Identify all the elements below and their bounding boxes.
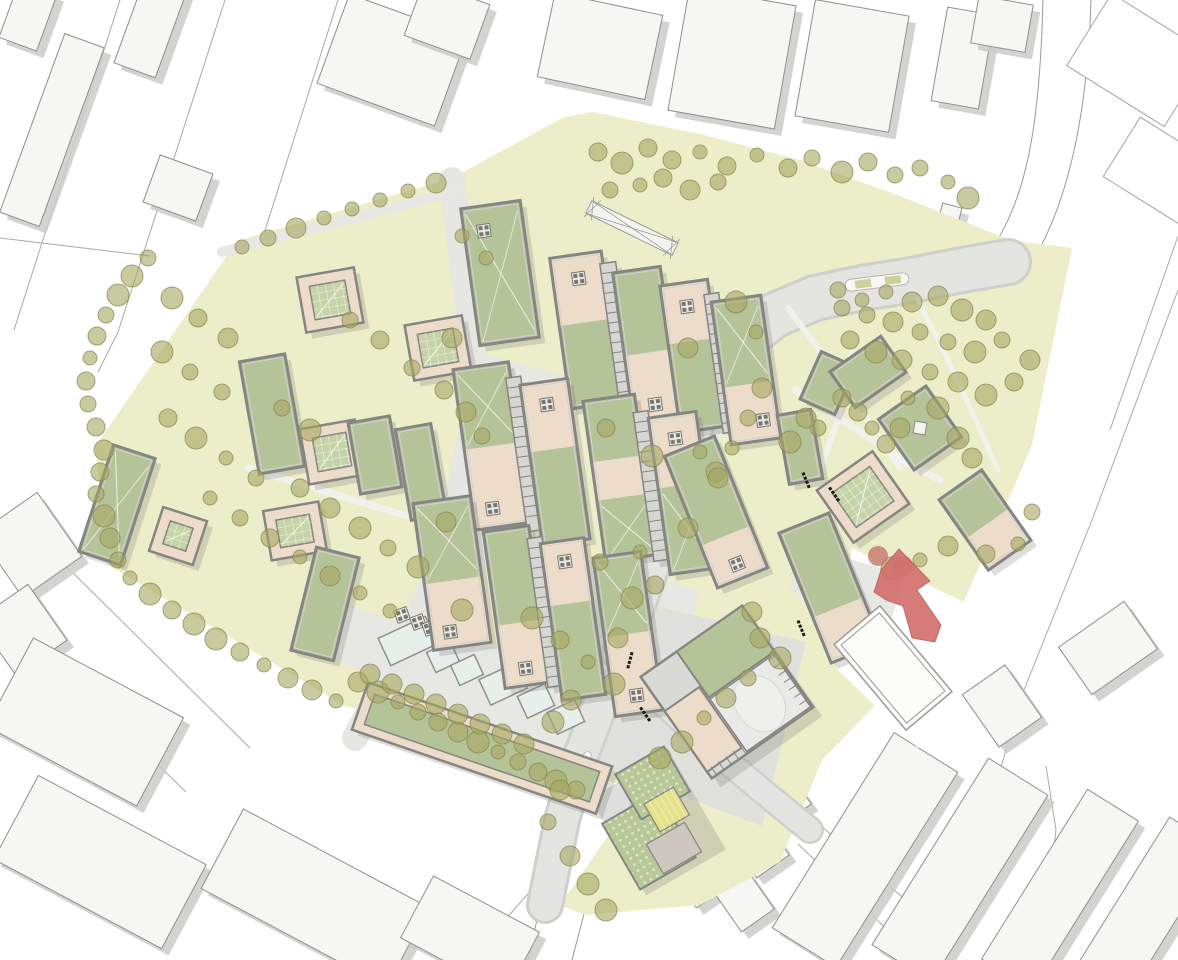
- tree: [83, 351, 97, 365]
- roof-hatch-cell: [520, 664, 525, 669]
- roof-hatch-cell: [488, 510, 493, 515]
- tree: [257, 658, 271, 672]
- tree: [320, 566, 340, 586]
- context-building: [971, 0, 1033, 52]
- tree: [938, 536, 958, 556]
- tree: [633, 178, 647, 192]
- tree: [231, 643, 249, 661]
- tree: [830, 282, 846, 298]
- tree: [975, 384, 997, 406]
- tree: [360, 664, 380, 684]
- tree: [436, 512, 456, 532]
- context-street-line: [0, 238, 150, 256]
- roof-hatch-frame: [443, 624, 458, 639]
- roof-hatch-checker: [477, 223, 492, 238]
- tree: [831, 161, 853, 183]
- tree: [595, 899, 617, 921]
- tree: [529, 763, 547, 781]
- roof-hatch-cell: [547, 399, 552, 404]
- tree: [248, 470, 264, 486]
- roof-hatch-cell: [687, 301, 692, 306]
- tree: [77, 372, 95, 390]
- tree: [693, 145, 707, 159]
- tree: [646, 576, 664, 594]
- roof-hatch-checker: [648, 397, 663, 412]
- tree: [163, 601, 181, 619]
- roof-hatch-frame: [668, 431, 683, 446]
- tree: [693, 445, 707, 459]
- tree: [426, 694, 446, 714]
- tree: [597, 419, 615, 437]
- tree: [922, 364, 938, 380]
- roof-hatch-frame: [756, 413, 771, 428]
- tree: [474, 428, 490, 444]
- tree: [928, 286, 948, 306]
- tree: [492, 724, 512, 744]
- roof-hatch-checker: [518, 661, 533, 676]
- tree: [779, 159, 797, 177]
- tree: [286, 218, 306, 238]
- roof-hatch-checker: [680, 299, 695, 314]
- roof-hatch-checker: [629, 688, 644, 703]
- roof-hatch-frame: [648, 397, 663, 412]
- roof-hatch-cell: [637, 690, 642, 695]
- roof-hatch-checker: [443, 624, 458, 639]
- context-road-outline: [572, 914, 584, 960]
- roof-hatch-cell: [487, 504, 492, 509]
- tree: [139, 583, 161, 605]
- tree: [976, 310, 996, 330]
- tree: [718, 157, 736, 175]
- tree: [834, 300, 850, 316]
- roof-hatch-cell: [656, 405, 661, 410]
- roof-hatch-cell: [445, 627, 450, 632]
- tree: [940, 334, 956, 350]
- tree: [887, 167, 903, 183]
- tree: [1024, 504, 1040, 520]
- roof-hatch-cell: [650, 400, 655, 405]
- tree: [235, 240, 249, 254]
- tree: [941, 175, 955, 189]
- tree: [581, 655, 595, 669]
- tree: [203, 491, 217, 505]
- roof-hatch-cell: [676, 433, 681, 438]
- tree: [435, 381, 453, 399]
- site-plan-stage: Architectural masterplan site drawing: n…: [0, 0, 1178, 960]
- tree: [410, 704, 426, 720]
- context-building-outline: [1103, 117, 1178, 227]
- roof-hatch-cell: [638, 696, 643, 701]
- tree: [621, 587, 643, 609]
- tree: [260, 230, 276, 246]
- tree: [80, 396, 96, 412]
- roof-hatch-cell: [566, 562, 571, 567]
- roof-hatch-frame: [558, 554, 573, 569]
- roof-hatch-cell: [580, 279, 585, 284]
- tree: [708, 468, 728, 488]
- tree: [429, 713, 447, 731]
- tree: [611, 152, 633, 174]
- roof-hatch-cell: [681, 302, 686, 307]
- roof-hatch-cell: [651, 406, 656, 411]
- tree: [749, 325, 763, 339]
- tree: [401, 184, 415, 198]
- roof-hatch-cell: [682, 308, 687, 313]
- tree: [274, 400, 290, 416]
- tree: [98, 307, 114, 323]
- context-street-line: [1110, 236, 1178, 430]
- roof-hatch-checker: [558, 554, 573, 569]
- tree: [470, 714, 490, 734]
- tree: [123, 571, 137, 585]
- tree: [448, 704, 468, 724]
- roof-hatch-frame: [540, 397, 555, 412]
- tree: [540, 814, 556, 830]
- tree: [107, 284, 129, 306]
- tree: [725, 291, 747, 313]
- tree: [577, 873, 599, 895]
- roof-hatch-cell: [757, 415, 762, 420]
- roof-hatch-cell: [688, 307, 693, 312]
- tree: [716, 688, 736, 708]
- tree: [342, 312, 358, 328]
- tree: [833, 389, 851, 407]
- tree: [442, 328, 462, 348]
- tree: [182, 364, 198, 380]
- context-building-outline: [1067, 0, 1178, 127]
- roof-hatch-cell: [548, 405, 553, 410]
- tree: [710, 174, 726, 190]
- context-building: [0, 492, 82, 597]
- tree: [479, 251, 493, 265]
- roof-hatch-frame: [571, 271, 586, 286]
- tree: [608, 628, 628, 648]
- tree: [769, 647, 791, 669]
- tree: [404, 360, 420, 376]
- tree: [883, 312, 903, 332]
- tree: [977, 545, 995, 563]
- tree: [750, 148, 764, 162]
- tree: [100, 528, 120, 548]
- tree: [218, 328, 238, 348]
- tree: [214, 384, 230, 400]
- tree: [678, 518, 698, 538]
- tree: [951, 299, 973, 321]
- tree: [345, 202, 359, 216]
- tree: [750, 628, 770, 648]
- roof-hatch-cell: [656, 399, 661, 404]
- tree: [448, 722, 468, 742]
- tree: [1005, 373, 1023, 391]
- roof-hatch-cell: [676, 439, 681, 444]
- tree: [641, 445, 663, 467]
- tree: [740, 670, 756, 686]
- tree: [94, 440, 114, 460]
- tree: [849, 403, 867, 421]
- tree: [779, 431, 801, 453]
- tree: [161, 287, 183, 309]
- tree: [697, 711, 711, 725]
- tree: [205, 628, 227, 650]
- tree: [88, 486, 104, 502]
- tree: [865, 341, 887, 363]
- tree: [603, 673, 625, 695]
- roof-hatch-checker: [668, 431, 683, 446]
- roof-hatch-cell: [526, 663, 531, 668]
- tree: [542, 711, 564, 733]
- context-building: [201, 809, 429, 960]
- tree: [913, 553, 927, 567]
- context-street-line: [262, 0, 338, 240]
- tree: [879, 285, 893, 299]
- tree: [725, 441, 739, 455]
- roof-hatch-cell: [445, 633, 450, 638]
- tree: [841, 331, 859, 349]
- roof-hatch-cell: [542, 406, 547, 411]
- roof-hatch-cell: [559, 557, 564, 562]
- roof-hatch-cell: [758, 421, 763, 426]
- tree: [371, 331, 389, 349]
- tree: [299, 419, 321, 441]
- tree: [1020, 350, 1040, 370]
- tree: [88, 327, 106, 345]
- tree: [373, 193, 387, 207]
- roof-hatch-cell: [527, 669, 532, 674]
- tree: [232, 510, 248, 526]
- tree: [859, 153, 877, 171]
- roof-hatch-frame: [518, 661, 533, 676]
- tree: [514, 734, 534, 754]
- roof-hatch-cell: [494, 509, 499, 514]
- tree: [560, 846, 580, 866]
- tree: [994, 332, 1010, 348]
- site-plan-canvas: Architectural masterplan site drawing: n…: [0, 0, 1178, 960]
- tree: [865, 421, 879, 435]
- tree: [752, 378, 772, 398]
- tree: [649, 747, 671, 769]
- roof-hatch-frame: [485, 501, 500, 516]
- tree: [912, 324, 928, 340]
- roof-hatch-frame: [629, 688, 644, 703]
- tree: [680, 180, 700, 200]
- tree: [957, 187, 979, 209]
- tinted-tree: [868, 546, 888, 566]
- tree: [317, 211, 331, 225]
- tree: [278, 668, 298, 688]
- tree: [947, 427, 969, 449]
- tree: [159, 409, 177, 427]
- tree: [1011, 537, 1025, 551]
- tree: [901, 391, 915, 405]
- roof-hatch-checker: [756, 413, 771, 428]
- tree: [349, 517, 371, 539]
- tree: [320, 498, 340, 518]
- roof-hatch-cell: [478, 226, 483, 231]
- tree: [93, 505, 115, 527]
- tree: [592, 554, 608, 570]
- tree: [302, 680, 322, 700]
- tree: [91, 463, 109, 481]
- tree: [382, 674, 402, 694]
- tree: [654, 169, 672, 187]
- tree: [407, 556, 429, 578]
- roof-hatch-frame: [680, 299, 695, 314]
- tree: [663, 151, 681, 169]
- tree: [855, 293, 869, 307]
- tree: [740, 410, 756, 426]
- tree: [87, 418, 105, 436]
- roof-hatch-cell: [632, 697, 637, 702]
- tree: [391, 695, 405, 709]
- tree: [796, 408, 816, 428]
- tree: [329, 694, 343, 708]
- roof-hatch-cell: [485, 231, 490, 236]
- roof-hatch-frame: [477, 223, 492, 238]
- roof-hatch-cell: [450, 626, 455, 631]
- tree: [383, 604, 397, 618]
- context-building: [795, 0, 909, 132]
- roof-hatch-cell: [484, 225, 489, 230]
- tree: [451, 599, 473, 621]
- tree: [353, 586, 367, 600]
- context-building: [668, 0, 796, 129]
- tree: [521, 607, 543, 629]
- tree: [140, 250, 156, 266]
- tree: [890, 418, 910, 438]
- roof-hatch-cell: [565, 556, 570, 561]
- roof-hatch-checker: [540, 397, 555, 412]
- tree: [426, 173, 446, 193]
- roof-hatch-cell: [479, 232, 484, 237]
- tree: [877, 435, 895, 453]
- tree: [671, 731, 693, 753]
- roof-hatch-cell: [671, 440, 676, 445]
- tree: [455, 229, 469, 243]
- tree: [491, 745, 505, 759]
- roof-hatch-cell: [573, 274, 578, 279]
- tree: [742, 602, 762, 622]
- tree: [561, 690, 581, 710]
- tree: [859, 307, 875, 323]
- tree: [678, 338, 698, 358]
- context-building: [0, 775, 206, 948]
- tree: [189, 309, 207, 327]
- roof-hatch-cell: [763, 414, 768, 419]
- tree: [962, 448, 982, 468]
- tree: [110, 552, 126, 568]
- roof-hatch-cell: [764, 420, 769, 425]
- tree: [902, 292, 922, 312]
- tree: [219, 451, 233, 465]
- tree: [550, 780, 570, 800]
- tree: [912, 160, 928, 176]
- roof-hatch-cell: [451, 632, 456, 637]
- tree: [151, 341, 173, 363]
- roof-hatch-cell: [670, 434, 675, 439]
- tree: [633, 545, 647, 559]
- tree: [639, 139, 657, 157]
- tree: [964, 341, 986, 363]
- tree: [510, 754, 526, 770]
- tree: [261, 529, 279, 547]
- tree: [185, 427, 207, 449]
- roof-hatch-cell: [574, 280, 579, 285]
- tree: [551, 631, 569, 649]
- roof-hatch-cell: [541, 400, 546, 405]
- roof-hatch-cell: [560, 563, 565, 568]
- context-building: [1059, 601, 1158, 694]
- roof-hatch-cell: [493, 503, 498, 508]
- roof-hatch-checker: [571, 271, 586, 286]
- tree: [892, 350, 912, 370]
- roof-hatch-cell: [521, 670, 526, 675]
- context-building: [401, 876, 540, 960]
- tree: [380, 540, 396, 556]
- tree: [121, 265, 143, 287]
- tree: [456, 402, 476, 422]
- tree: [804, 150, 820, 166]
- tree: [602, 182, 618, 198]
- tree: [927, 397, 949, 419]
- tree: [589, 143, 607, 161]
- tree: [948, 372, 968, 392]
- roof-opening: [913, 421, 927, 435]
- tree: [291, 479, 309, 497]
- roof-hatch-cell: [631, 691, 636, 696]
- roof-hatch-checker: [485, 501, 500, 516]
- tree: [293, 550, 307, 564]
- tree: [183, 613, 205, 635]
- roof-hatch-cell: [579, 273, 584, 278]
- tree: [404, 684, 424, 704]
